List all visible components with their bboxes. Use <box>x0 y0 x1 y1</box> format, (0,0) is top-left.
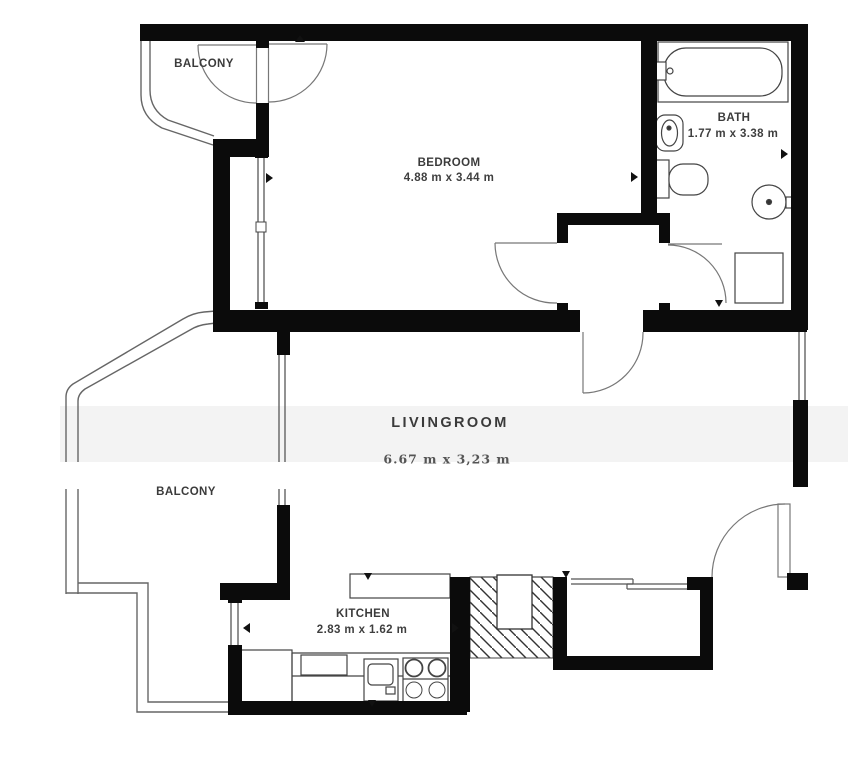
windows <box>231 157 805 645</box>
arrow-down-icon <box>715 300 723 307</box>
wall-kitchen-left-upper <box>228 592 242 603</box>
arrow-right-icon <box>781 149 788 159</box>
arrow-left-icon <box>243 623 250 633</box>
wall-bedroom-bottom <box>213 310 580 332</box>
wall-storage-bottom <box>553 656 713 670</box>
balcony-top-outer-wall <box>141 40 213 145</box>
wall-right-upper <box>791 24 808 330</box>
wall-hall-right-lower <box>659 303 670 313</box>
balcony-top-inner-wall <box>150 40 214 136</box>
kitchen-window <box>231 603 238 645</box>
wall-storage-right <box>700 577 713 670</box>
kitchen-label: KITCHEN <box>336 608 390 620</box>
wall-bedroom-window-cap-bottom <box>255 302 268 309</box>
wall-livingroom-window-top-stub <box>277 322 290 355</box>
bedroom-window-joint <box>256 222 266 232</box>
stove-burner-4 <box>429 682 445 698</box>
kitchen-counter-unit <box>301 655 347 675</box>
wall-bath-bottom <box>643 310 807 332</box>
stove-burner-2 <box>429 660 446 677</box>
bedroom-dimensions: 4.88 m x 3.44 m <box>404 172 494 184</box>
livingroom-label: LIVINGROOM <box>391 415 508 431</box>
bath-fixtures <box>655 42 793 303</box>
wall-hall-left-lower <box>557 303 568 313</box>
wall-bedroom-bath-divider <box>641 40 657 215</box>
sliding-door <box>571 579 689 589</box>
bath-label: BATH <box>718 112 751 124</box>
hall-bath-door <box>668 244 726 303</box>
wall-kitchen-right <box>450 577 470 712</box>
wall-hall-left-upper <box>557 225 568 243</box>
balcony-bottom-outer-wall <box>66 593 228 712</box>
entrance-door-leaf <box>778 504 790 577</box>
wall-right-mid <box>793 400 808 487</box>
wall-hall-top <box>557 213 670 225</box>
wall-bedroom-window-cap-top <box>255 151 268 158</box>
livingroom-dimensions: 6.67 m x 3,23 m <box>383 452 510 467</box>
wall-shaft-right <box>553 577 567 667</box>
balcony-bottom-inner-wall <box>78 583 228 702</box>
stove-burner-1 <box>406 660 423 677</box>
kitchen-sink-faucet <box>386 687 395 694</box>
kitchen-sink-basin <box>368 664 393 685</box>
balcony-top-label: BALCONY <box>174 58 234 70</box>
toilet-tank <box>655 160 669 198</box>
round-basin-drain <box>767 200 772 205</box>
wall-kitchen-bottom <box>228 701 467 715</box>
service-shaft <box>470 575 553 658</box>
hall-bedroom-door <box>495 243 557 303</box>
bathtub-drain <box>667 68 673 74</box>
livingroom-right-window <box>799 330 805 400</box>
toilet-bowl <box>669 164 708 195</box>
shaft-duct <box>497 575 532 629</box>
washbasin <box>662 120 678 146</box>
wall-bedroom-left <box>213 139 230 322</box>
wall-top <box>140 24 807 41</box>
balcony-door-jambs <box>257 48 269 103</box>
hall-livingroom-door <box>583 332 643 393</box>
bathtub-faucet <box>656 62 666 80</box>
shower <box>735 253 783 303</box>
wall-hall-right-upper <box>659 225 670 243</box>
balcony-door-right-leaf <box>269 44 327 102</box>
wall-balcony-door-top <box>256 40 269 48</box>
stove-burner-3 <box>406 682 422 698</box>
kitchen-dimensions: 2.83 m x 1.62 m <box>317 624 407 636</box>
wall-livingroom-bottom-right <box>687 577 713 590</box>
balcony-railings <box>66 40 228 712</box>
arrow-right-icon <box>631 172 638 182</box>
counter-bar <box>350 574 450 598</box>
kitchen-cabinet <box>238 650 292 703</box>
wall-entrance-hinge-block <box>787 573 808 590</box>
bathtub <box>664 48 782 96</box>
bath-dimensions: 1.77 m x 3.38 m <box>688 128 778 140</box>
floorplan-image: BALCONY BEDROOM 4.88 m x 3.44 m BATH 1.7… <box>0 0 848 762</box>
washbasin-tap <box>667 126 671 130</box>
balcony-left-label: BALCONY <box>156 486 216 498</box>
entrance-door-arc <box>712 504 785 577</box>
balcony-door-left-leaf <box>198 45 256 103</box>
bedroom-label: BEDROOM <box>418 157 481 169</box>
arrow-right-icon <box>266 173 273 183</box>
arrow-down-icon <box>562 571 570 578</box>
